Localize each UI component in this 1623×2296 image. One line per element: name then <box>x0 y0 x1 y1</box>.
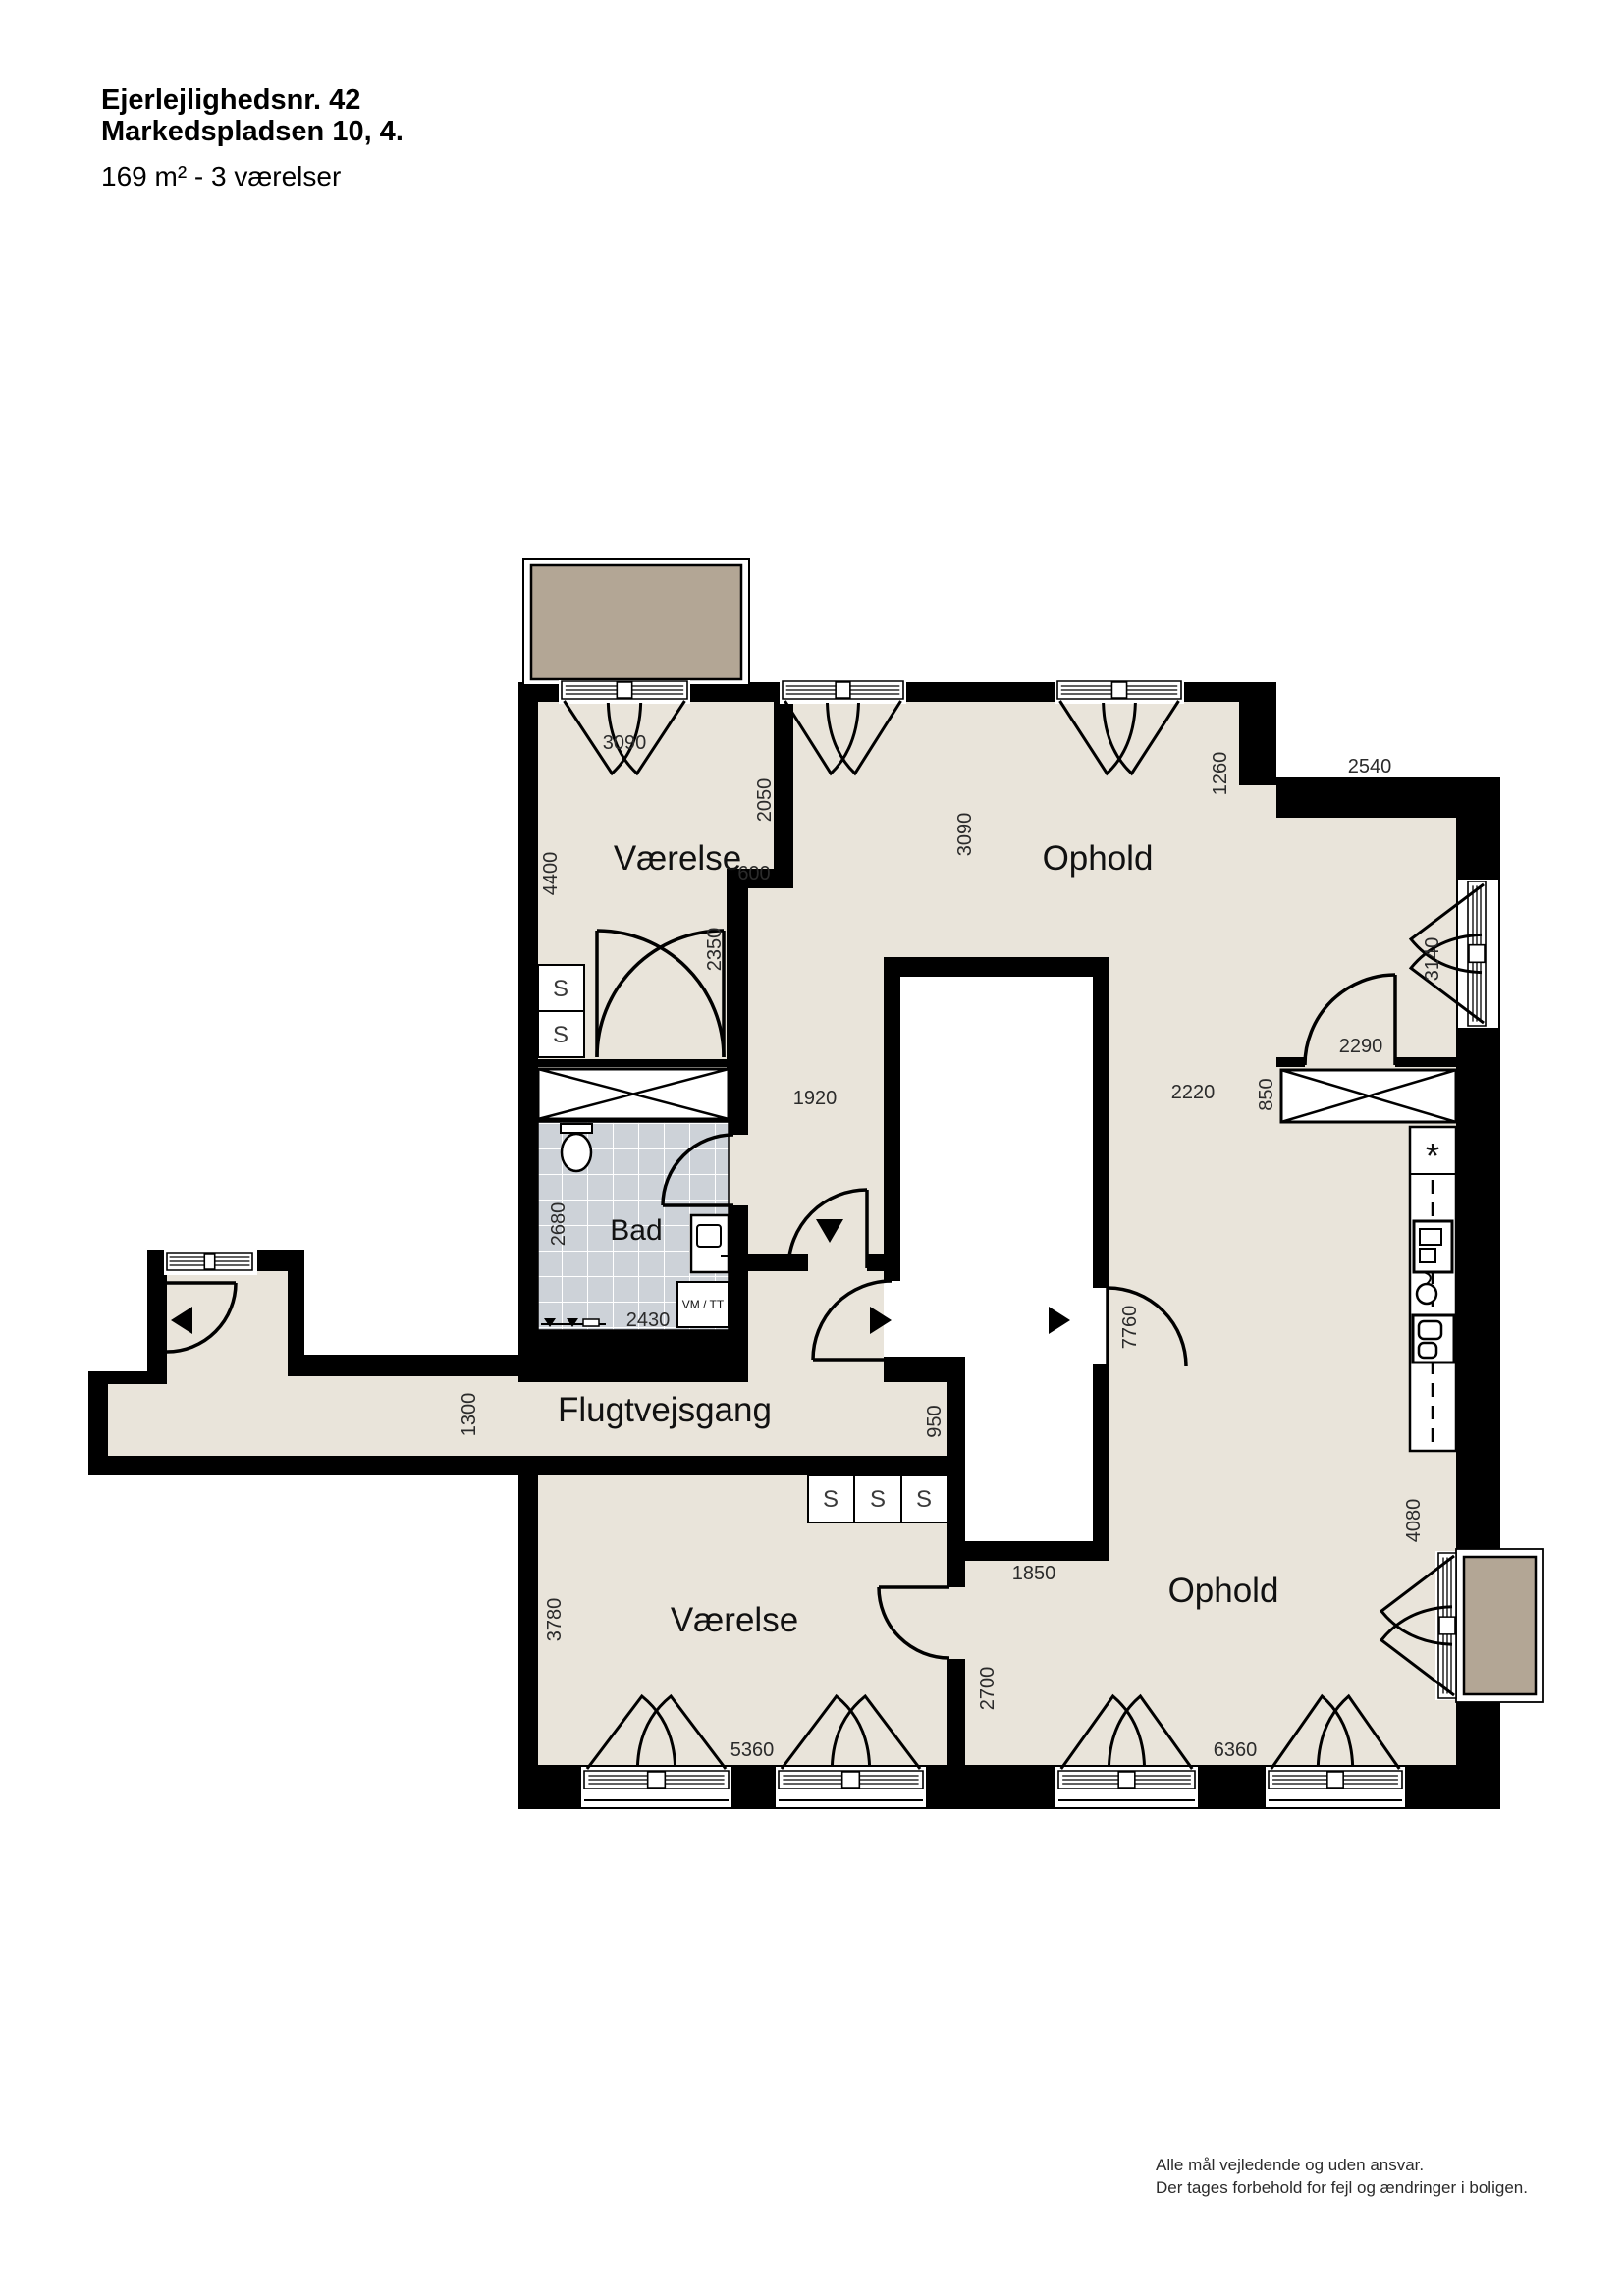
kitchen-sink-icon <box>1414 1221 1452 1272</box>
room-label-bathroom: Bad <box>610 1214 662 1247</box>
disclaimer-line1: Alle mål vejledende og uden ansvar. <box>1156 2154 1528 2176</box>
cabinet-s: S <box>916 1486 932 1513</box>
dim-2680: 2680 <box>548 1202 569 1247</box>
dim-2540: 2540 <box>1348 756 1392 777</box>
dim-2700: 2700 <box>977 1667 999 1711</box>
faucet-icon <box>1417 1284 1436 1304</box>
dim-3090-top: 3090 <box>603 732 647 754</box>
dim-850: 850 <box>1256 1078 1277 1110</box>
dim-1850: 1850 <box>1012 1563 1056 1584</box>
disclaimer-line2: Der tages forbehold for fejl og ændringe… <box>1156 2176 1528 2199</box>
dim-4400: 4400 <box>540 852 562 896</box>
dim-1260: 1260 <box>1210 752 1231 796</box>
dim-2220: 2220 <box>1171 1082 1216 1103</box>
dim-2050: 2050 <box>754 778 776 823</box>
floor-plan: VM / TT S S <box>0 0 1623 2296</box>
dim-600: 600 <box>737 863 770 884</box>
dim-5360: 5360 <box>730 1739 775 1761</box>
dim-6360: 6360 <box>1214 1739 1258 1761</box>
apartment-floor <box>88 682 1500 1809</box>
sink-icon <box>691 1215 729 1272</box>
dim-1920: 1920 <box>793 1088 838 1109</box>
dim-4080: 4080 <box>1403 1499 1425 1543</box>
cabinet-s: S <box>823 1486 839 1513</box>
cabinet-s: S <box>553 1022 568 1048</box>
room-label-living-bottom: Ophold <box>1168 1572 1279 1610</box>
disclaimer: Alle mål vejledende og uden ansvar. Der … <box>1156 2154 1528 2199</box>
wardrobe-x-right <box>1281 1070 1456 1122</box>
dim-1300: 1300 <box>459 1393 480 1437</box>
dim-950: 950 <box>924 1405 946 1437</box>
floorplan-page: Ejerlejlighedsnr. 42 Markedspladsen 10, … <box>0 0 1623 2296</box>
fridge-icon: * <box>1426 1136 1439 1176</box>
dim-3140: 3140 <box>1422 937 1443 982</box>
washer-dryer: VM / TT <box>677 1282 729 1327</box>
room-label-living-top: Ophold <box>1043 839 1154 878</box>
washer-dryer-label: VM / TT <box>682 1298 725 1311</box>
stove-icon <box>1413 1315 1454 1362</box>
dim-3090-living: 3090 <box>954 813 976 857</box>
dim-7760: 7760 <box>1119 1306 1141 1350</box>
dim-2430: 2430 <box>626 1309 671 1331</box>
dim-2290: 2290 <box>1339 1036 1383 1057</box>
cabinet-s: S <box>870 1486 886 1513</box>
room-label-bedroom-top: Værelse <box>614 839 741 878</box>
toilet-icon <box>561 1124 592 1171</box>
balcony-top <box>523 559 749 685</box>
kitchen: * <box>1410 1127 1456 1451</box>
room-label-bedroom-bottom: Værelse <box>671 1601 798 1639</box>
dim-2350: 2350 <box>704 928 726 972</box>
dim-3780: 3780 <box>544 1598 566 1642</box>
wardrobe-x-left <box>538 1069 729 1119</box>
cabinet-s: S <box>553 976 568 1002</box>
room-label-corridor: Flugtvejsgang <box>558 1391 772 1429</box>
